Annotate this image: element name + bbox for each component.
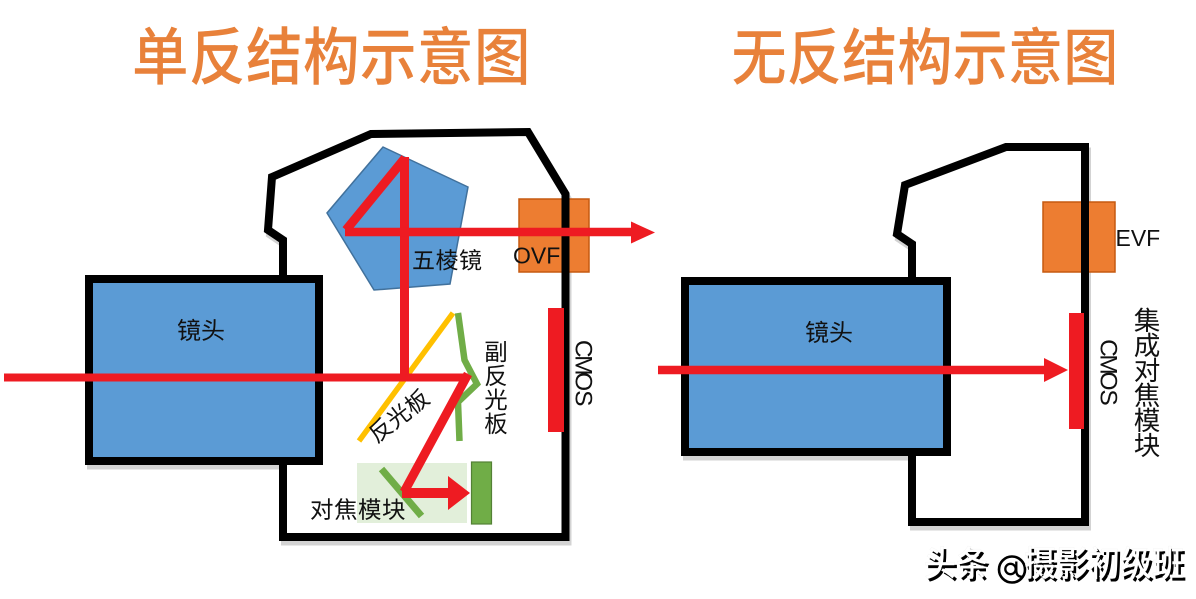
svg-text:O: O xyxy=(570,372,597,391)
svg-text:EVF: EVF xyxy=(1116,225,1161,251)
svg-text:O: O xyxy=(1095,371,1122,390)
svg-text:S: S xyxy=(570,390,597,406)
svg-text:OVF: OVF xyxy=(513,243,560,269)
svg-text:S: S xyxy=(1095,389,1122,405)
